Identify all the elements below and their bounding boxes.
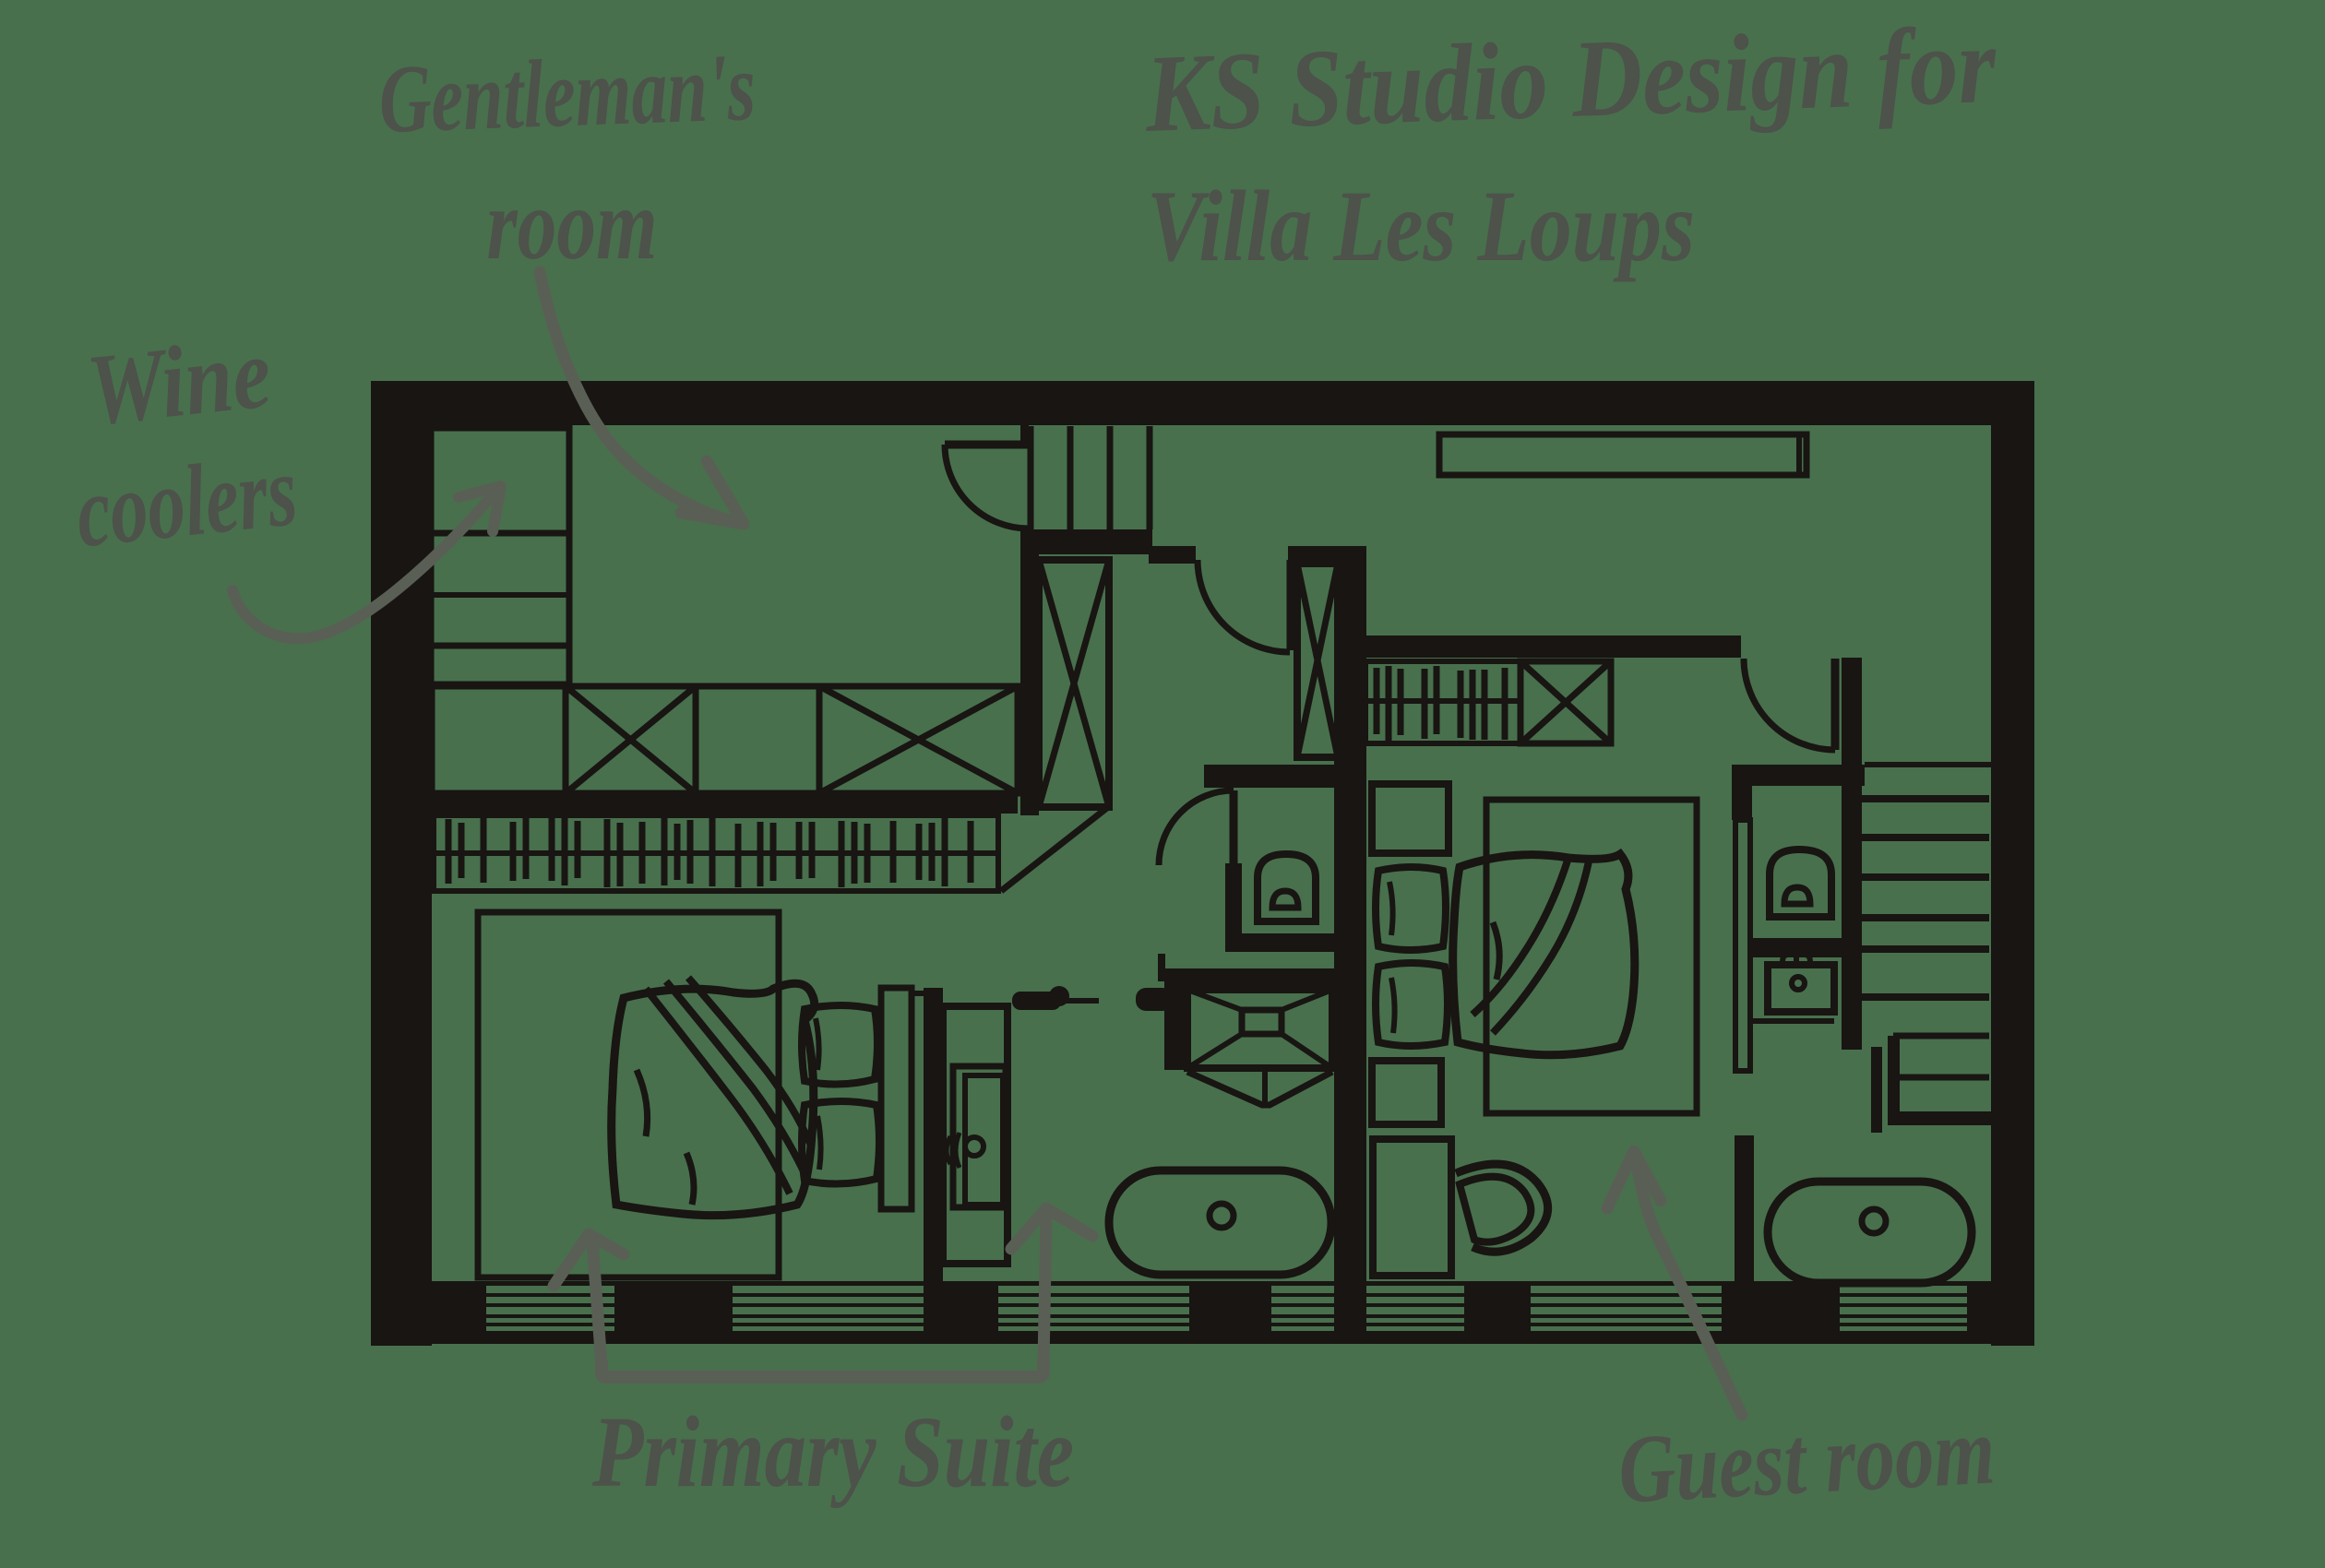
svg-text:coolers: coolers [71, 434, 302, 568]
svg-text:Gentleman's: Gentleman's [377, 32, 757, 153]
svg-text:Primary Suite: Primary Suite [591, 1396, 1074, 1508]
svg-text:Wine: Wine [82, 315, 276, 446]
svg-text:room: room [487, 168, 658, 280]
svg-text:KS Studio Design for: KS Studio Design for [1142, 3, 1998, 155]
svg-text:Guest room: Guest room [1616, 1396, 1997, 1523]
svg-text:Villa Les Loups: Villa Les Loups [1147, 170, 1695, 282]
